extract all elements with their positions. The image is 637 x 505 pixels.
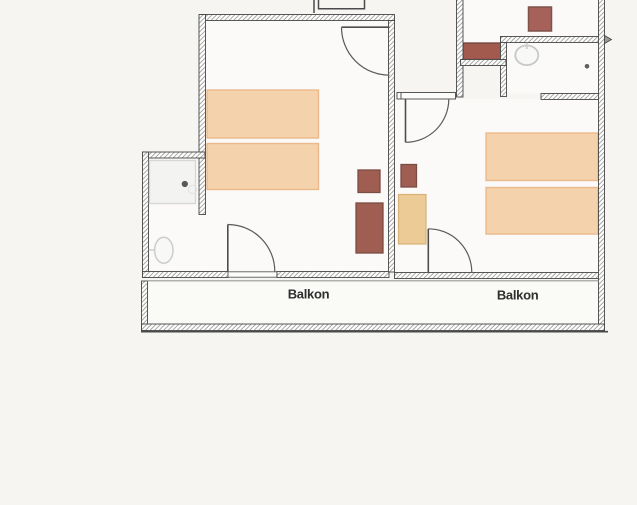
svg-text:Balkon: Balkon bbox=[497, 288, 539, 303]
svg-text:Balkon: Balkon bbox=[288, 287, 330, 302]
